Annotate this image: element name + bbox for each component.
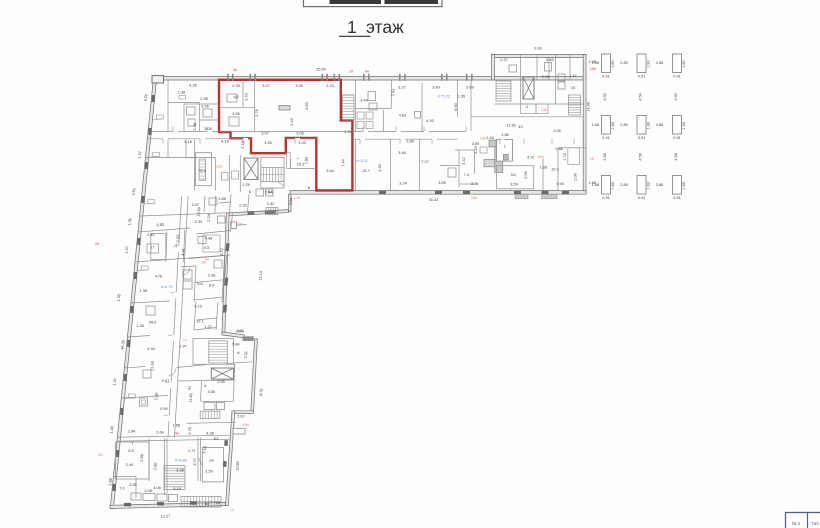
svg-text:4.23: 4.23 [290, 118, 294, 125]
svg-text:4.60: 4.60 [208, 390, 215, 394]
svg-text:2.83: 2.83 [147, 233, 154, 237]
svg-text:3.55: 3.55 [438, 181, 445, 185]
svg-text:8.3: 8.3 [128, 449, 133, 453]
svg-text:1.22: 1.22 [204, 325, 211, 329]
svg-text:2.07: 2.07 [192, 203, 199, 207]
svg-text:1.58: 1.58 [173, 423, 180, 427]
svg-text:1.66: 1.66 [589, 181, 596, 185]
svg-text:18н: 18н [590, 67, 596, 71]
svg-text:2.85: 2.85 [620, 123, 627, 127]
svg-text:4.94: 4.94 [556, 182, 563, 186]
svg-text:2.76: 2.76 [255, 109, 259, 116]
svg-text:1: 1 [526, 105, 528, 109]
svg-text:2.00: 2.00 [153, 463, 158, 471]
svg-text:0.87: 0.87 [162, 379, 169, 383]
svg-text:2.86: 2.86 [656, 183, 663, 187]
svg-text:15.50: 15.50 [197, 207, 202, 217]
svg-text:1.76: 1.76 [563, 153, 567, 160]
svg-text:8.8: 8.8 [209, 284, 214, 288]
svg-text:2.02: 2.02 [237, 415, 244, 419]
svg-text:8.31: 8.31 [259, 388, 264, 396]
svg-text:2.37: 2.37 [500, 58, 507, 62]
svg-text:2.06: 2.06 [574, 173, 578, 180]
svg-text:2.23: 2.23 [326, 84, 333, 88]
svg-text:1.38: 1.38 [178, 91, 185, 95]
svg-text:4.56: 4.56 [639, 153, 643, 160]
svg-text:3.28: 3.28 [176, 469, 183, 473]
svg-text:2.48: 2.48 [193, 123, 198, 131]
svg-text:1: 1 [347, 17, 357, 37]
svg-text:4.76: 4.76 [155, 275, 162, 279]
svg-text:4.18: 4.18 [184, 140, 191, 144]
svg-text:11.36: 11.36 [506, 124, 515, 128]
svg-text:2.24: 2.24 [207, 214, 212, 222]
svg-text:5н: 5н [175, 432, 179, 436]
svg-text:2.39: 2.39 [232, 84, 239, 88]
svg-text:3н: 3н [233, 68, 237, 72]
svg-text:0.91: 0.91 [673, 196, 680, 200]
svg-text:11.46: 11.46 [189, 393, 194, 403]
svg-text:этаж: этаж [366, 17, 404, 37]
svg-text:4.56: 4.56 [603, 153, 607, 160]
svg-text:h=5.21: h=5.21 [356, 159, 368, 163]
svg-text:0.91: 0.91 [673, 75, 680, 79]
svg-text:2.86: 2.86 [656, 123, 663, 127]
svg-text:A: A [237, 351, 240, 355]
svg-text:8н: 8н [202, 261, 206, 265]
svg-text:6.83: 6.83 [157, 223, 165, 228]
svg-text:2.92: 2.92 [391, 89, 396, 97]
svg-text:2.98: 2.98 [200, 97, 207, 101]
svg-text:2.88: 2.88 [108, 478, 113, 486]
svg-text:5н: 5н [98, 453, 102, 457]
svg-text:3.05: 3.05 [296, 132, 303, 136]
svg-text:14.98: 14.98 [587, 102, 591, 112]
svg-text:2.32: 2.32 [239, 204, 246, 208]
svg-text:3.77: 3.77 [193, 458, 198, 466]
svg-text:2.29: 2.29 [242, 183, 249, 187]
svg-text:14: 14 [216, 501, 220, 505]
svg-text:5.63: 5.63 [305, 102, 309, 109]
svg-text:0.91: 0.91 [638, 75, 645, 79]
svg-text:43: 43 [518, 125, 522, 129]
svg-text:ЦЗ: ЦЗ [233, 95, 239, 99]
svg-text:2.88: 2.88 [406, 140, 413, 144]
svg-text:3.56: 3.56 [232, 112, 239, 116]
svg-text:7.4: 7.4 [464, 173, 469, 177]
svg-text:3.69: 3.69 [472, 142, 479, 146]
svg-text:a3: a3 [209, 459, 213, 463]
svg-text:12н: 12н [216, 165, 222, 169]
svg-text:Б4: Б4 [205, 502, 210, 506]
svg-text:1.50: 1.50 [682, 182, 686, 189]
svg-text:4.50: 4.50 [674, 93, 678, 100]
svg-text:1: 1 [131, 442, 133, 446]
svg-text:4: 4 [175, 243, 177, 247]
svg-text:1.60: 1.60 [611, 122, 615, 129]
svg-text:7.63: 7.63 [203, 446, 208, 454]
svg-text:5.40: 5.40 [546, 58, 553, 62]
svg-text:7.44: 7.44 [342, 159, 346, 166]
svg-text:7.0: 7.0 [119, 487, 124, 491]
svg-text:1.50: 1.50 [682, 122, 686, 129]
svg-text:17: 17 [150, 246, 154, 250]
svg-text:3.38: 3.38 [471, 182, 478, 186]
svg-text:2.64: 2.64 [156, 431, 163, 435]
svg-text:13н: 13н [480, 137, 486, 141]
svg-text:3.59: 3.59 [510, 183, 517, 187]
svg-text:2.31: 2.31 [244, 351, 249, 359]
svg-text:2.85: 2.85 [620, 61, 627, 65]
svg-text:2.81: 2.81 [236, 330, 243, 334]
svg-text:10н: 10н [236, 222, 242, 226]
svg-text:1: 1 [503, 145, 505, 149]
svg-text:ЕЗ: ЕЗ [214, 437, 219, 441]
svg-text:6.90: 6.90 [454, 103, 458, 110]
svg-text:h=5.22: h=5.22 [438, 95, 450, 99]
svg-text:78.5: 78.5 [198, 169, 205, 173]
svg-text:1.93: 1.93 [647, 122, 651, 129]
svg-text:2.09: 2.09 [542, 75, 549, 79]
svg-text:10.82: 10.82 [235, 461, 240, 471]
svg-text:6.26: 6.26 [189, 84, 196, 88]
svg-text:3.24: 3.24 [399, 182, 406, 186]
svg-text:2н: 2н [95, 242, 99, 246]
svg-text:5.84: 5.84 [232, 343, 239, 347]
svg-text:0.91: 0.91 [673, 136, 680, 140]
svg-text:2.95: 2.95 [217, 380, 224, 384]
svg-text:19н: 19н [242, 423, 248, 427]
svg-text:Таб: Таб [811, 521, 819, 526]
svg-text:4.93: 4.93 [426, 119, 433, 123]
svg-text:3.06: 3.06 [204, 127, 211, 131]
svg-text:1.34: 1.34 [344, 130, 351, 134]
svg-text:в: в [204, 384, 206, 388]
svg-text:2.5в: 2.5в [208, 274, 215, 278]
svg-text:3.42: 3.42 [462, 157, 466, 164]
svg-text:16н: 16н [471, 196, 477, 200]
svg-text:17н: 17н [294, 196, 300, 200]
svg-text:2.08: 2.08 [553, 129, 560, 133]
svg-text:15.2: 15.2 [297, 163, 304, 167]
svg-text:3.25: 3.25 [264, 141, 271, 145]
svg-text:3.64: 3.64 [326, 169, 333, 173]
svg-text:2.49: 2.49 [126, 463, 133, 467]
svg-text:0.91: 0.91 [638, 196, 645, 200]
svg-text:2.40: 2.40 [245, 93, 249, 100]
svg-text:3.80: 3.80 [432, 86, 439, 90]
svg-text:1.50: 1.50 [682, 61, 686, 68]
svg-text:1.86: 1.86 [501, 133, 508, 137]
svg-text:13н: 13н [541, 108, 547, 112]
svg-text:0.91: 0.91 [638, 136, 645, 140]
svg-text:3.08: 3.08 [153, 486, 160, 490]
svg-text:2.75: 2.75 [188, 427, 193, 435]
svg-text:3.44: 3.44 [360, 99, 367, 103]
svg-text:1.97: 1.97 [179, 345, 186, 349]
svg-text:2.44: 2.44 [265, 191, 272, 195]
svg-text:10.3: 10.3 [551, 168, 558, 172]
svg-text:2.96: 2.96 [201, 105, 208, 109]
svg-text:5.19: 5.19 [173, 487, 180, 491]
svg-text:0.90: 0.90 [160, 407, 167, 411]
svg-text:4.63: 4.63 [399, 114, 406, 118]
svg-text:3.07: 3.07 [262, 84, 269, 88]
svg-text:9.90: 9.90 [534, 47, 541, 51]
svg-text:4.15: 4.15 [194, 305, 201, 309]
svg-text:4.94: 4.94 [147, 347, 154, 351]
svg-text:7н: 7н [183, 338, 187, 342]
svg-text:№ п: № п [792, 521, 801, 526]
svg-text:2.98: 2.98 [140, 454, 145, 462]
svg-text:7.27: 7.27 [421, 160, 428, 164]
svg-text:1.98: 1.98 [588, 60, 595, 64]
svg-text:1.47: 1.47 [569, 74, 576, 78]
svg-text:h=4.80: h=4.80 [175, 459, 187, 463]
svg-text:3.07: 3.07 [261, 132, 268, 136]
svg-text:35.59: 35.59 [316, 68, 326, 72]
svg-text:h=4.79: h=4.79 [161, 285, 173, 289]
svg-text:3.69: 3.69 [466, 86, 473, 90]
svg-text:2.86: 2.86 [656, 61, 663, 65]
svg-text:4.38: 4.38 [206, 432, 213, 436]
svg-text:2.94: 2.94 [289, 198, 294, 206]
svg-text:4.15: 4.15 [474, 146, 478, 153]
svg-text:31.42: 31.42 [429, 198, 439, 202]
svg-text:1.88: 1.88 [218, 197, 225, 201]
svg-text:3.05: 3.05 [298, 141, 305, 145]
svg-text:2.10: 2.10 [241, 141, 246, 149]
svg-text:0.91: 0.91 [602, 75, 609, 79]
svg-text:Б4: Б4 [511, 173, 516, 177]
svg-text:1.60: 1.60 [611, 182, 615, 189]
svg-text:4.50: 4.50 [639, 93, 643, 100]
svg-text:4.98: 4.98 [205, 237, 212, 241]
svg-text:1н: 1н [230, 508, 234, 512]
svg-text:1.38: 1.38 [136, 324, 143, 328]
svg-text:16н: 16н [537, 155, 543, 159]
svg-text:1.34: 1.34 [486, 136, 493, 140]
svg-text:1.66: 1.66 [592, 123, 599, 127]
svg-text:1.93: 1.93 [176, 235, 181, 243]
svg-text:3.05: 3.05 [295, 84, 302, 88]
svg-text:2.55: 2.55 [524, 171, 528, 178]
svg-text:15.7: 15.7 [362, 169, 369, 173]
svg-text:12.1: 12.1 [196, 320, 203, 324]
svg-text:5.6: 5.6 [197, 282, 202, 286]
svg-text:4.41: 4.41 [181, 248, 186, 256]
svg-text:4.50: 4.50 [603, 93, 607, 100]
svg-text:12.27: 12.27 [161, 514, 171, 518]
svg-text:2.59: 2.59 [205, 470, 212, 474]
svg-text:1.85: 1.85 [304, 157, 309, 165]
svg-text:4.35: 4.35 [378, 164, 382, 171]
svg-text:2.30: 2.30 [154, 393, 159, 401]
svg-text:2.65: 2.65 [129, 483, 136, 487]
svg-text:21.69: 21.69 [150, 361, 155, 371]
svg-text:4н: 4н [365, 70, 369, 74]
svg-text:1.60: 1.60 [611, 61, 615, 68]
svg-text:2.85: 2.85 [620, 183, 627, 187]
svg-text:1.38: 1.38 [140, 289, 147, 293]
svg-text:1.88: 1.88 [555, 147, 562, 151]
svg-text:ЕЗ: ЕЗ [204, 246, 209, 250]
svg-text:3.72: 3.72 [220, 248, 225, 256]
svg-text:1.93: 1.93 [647, 61, 651, 68]
svg-text:3.48: 3.48 [398, 151, 405, 155]
svg-text:0.91: 0.91 [602, 136, 609, 140]
svg-text:1.71: 1.71 [188, 449, 195, 453]
svg-text:16: 16 [571, 86, 575, 90]
svg-text:4.18: 4.18 [221, 140, 228, 144]
svg-text:2.32: 2.32 [267, 202, 274, 206]
svg-text:1.93: 1.93 [647, 182, 651, 189]
svg-text:0.91: 0.91 [602, 196, 609, 200]
svg-text:41: 41 [188, 386, 192, 391]
svg-text:2.30: 2.30 [195, 220, 202, 224]
svg-text:1.08: 1.08 [144, 489, 151, 493]
svg-text:3.72: 3.72 [527, 156, 534, 160]
svg-text:4.56: 4.56 [674, 153, 678, 160]
svg-text:13.14: 13.14 [258, 271, 263, 281]
svg-text:3.27: 3.27 [398, 86, 405, 90]
svg-text:1.68: 1.68 [540, 166, 547, 170]
svg-text:2.84: 2.84 [128, 430, 135, 434]
svg-text:1.35: 1.35 [458, 95, 465, 99]
svg-text:95.6: 95.6 [149, 321, 156, 325]
